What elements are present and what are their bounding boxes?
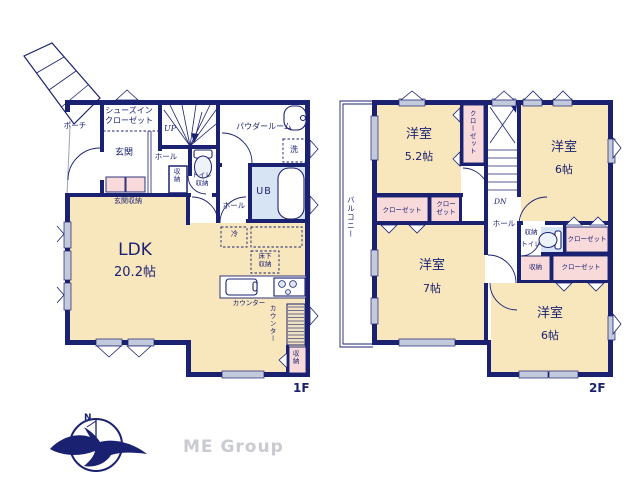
stairs-dn-label: DN [494,197,507,206]
balcony-outline [340,101,373,347]
balcony-label: バルコニー [346,196,355,258]
storage-b-label: 収納 [521,263,550,271]
western-room-52-name: 洋室 [385,127,453,143]
kitchen-sink-icon [226,279,257,295]
hall-storage-label: 収納 [172,168,180,192]
unit-bath-label: UB [250,186,278,198]
laundry-label: 洗 [290,145,298,155]
closet-c-label: クローゼット [566,235,608,243]
compass-north-label: N [84,413,92,424]
closet-b-label: クロー ゼット [432,200,460,216]
stairs-2f-icon [488,104,517,190]
closet-stairside-label: クローゼット [468,110,476,160]
stairs-up-label: UP [164,124,176,134]
porch-steps [24,43,100,196]
bird-icon [50,427,147,466]
compass-logo-icon [50,419,147,471]
floor1-tag: 1F [293,381,310,396]
company-logo-text: ME Group [183,437,284,457]
refrigerator-label: 冷 [222,230,247,239]
western-room-6u-size: 6帖 [532,163,596,177]
bathtub-icon [278,168,304,219]
western-room-6u-name: 洋室 [532,140,596,156]
closet-d-label: クローゼット [554,263,608,271]
shoes-in-closet-label: シューズイン クローゼット [98,106,160,126]
side-counter-icon [287,304,305,345]
stove-icon [274,278,305,296]
hall-2f-label: ホール [489,219,519,228]
corner-storage-label: 収納 [291,350,299,374]
western-room-6l-size: 6帖 [518,329,582,343]
side-counter-label: カウンター [268,305,276,347]
storage-a-label: 収納 [520,228,542,236]
western-room-7-size: 7帖 [400,282,464,296]
western-room-6l-name: 洋室 [518,306,582,322]
kitchen-icon [220,276,306,298]
ldk-size-label: 20.2帖 [100,265,170,281]
entrance-storage-label: 玄関収納 [106,197,150,206]
porch-label: ポーチ [55,121,95,130]
entrance-label: 玄関 [103,148,145,159]
hall-upper-label: ホール [149,152,183,161]
ldk-name-label: LDK [105,240,165,261]
hall-lower-label: ホール [219,201,249,210]
floorplan-canvas: ポーチ シューズイン クローゼット 玄関 ホール UP 収納 トイレ 収納 パウ… [0,0,640,480]
kitchen-counter-label: カウンター [226,299,272,307]
western-room-52-size: 5.2帖 [385,150,453,164]
floor2-tag: 2F [589,381,606,396]
toilet-2f-label: トイレ [520,240,542,248]
western-room-7-name: 洋室 [400,258,464,274]
entrance-storage-boxes [106,177,145,192]
powder-room-label: パウダールーム [224,122,304,132]
plan-linework [0,0,640,480]
closet-a-label: クローゼット [376,206,428,214]
toilet-storage-label: トイレ 収納 [188,171,216,187]
underfloor-storage-label: 床下 収納 [251,252,279,268]
toilet-2f-icon [539,231,561,249]
